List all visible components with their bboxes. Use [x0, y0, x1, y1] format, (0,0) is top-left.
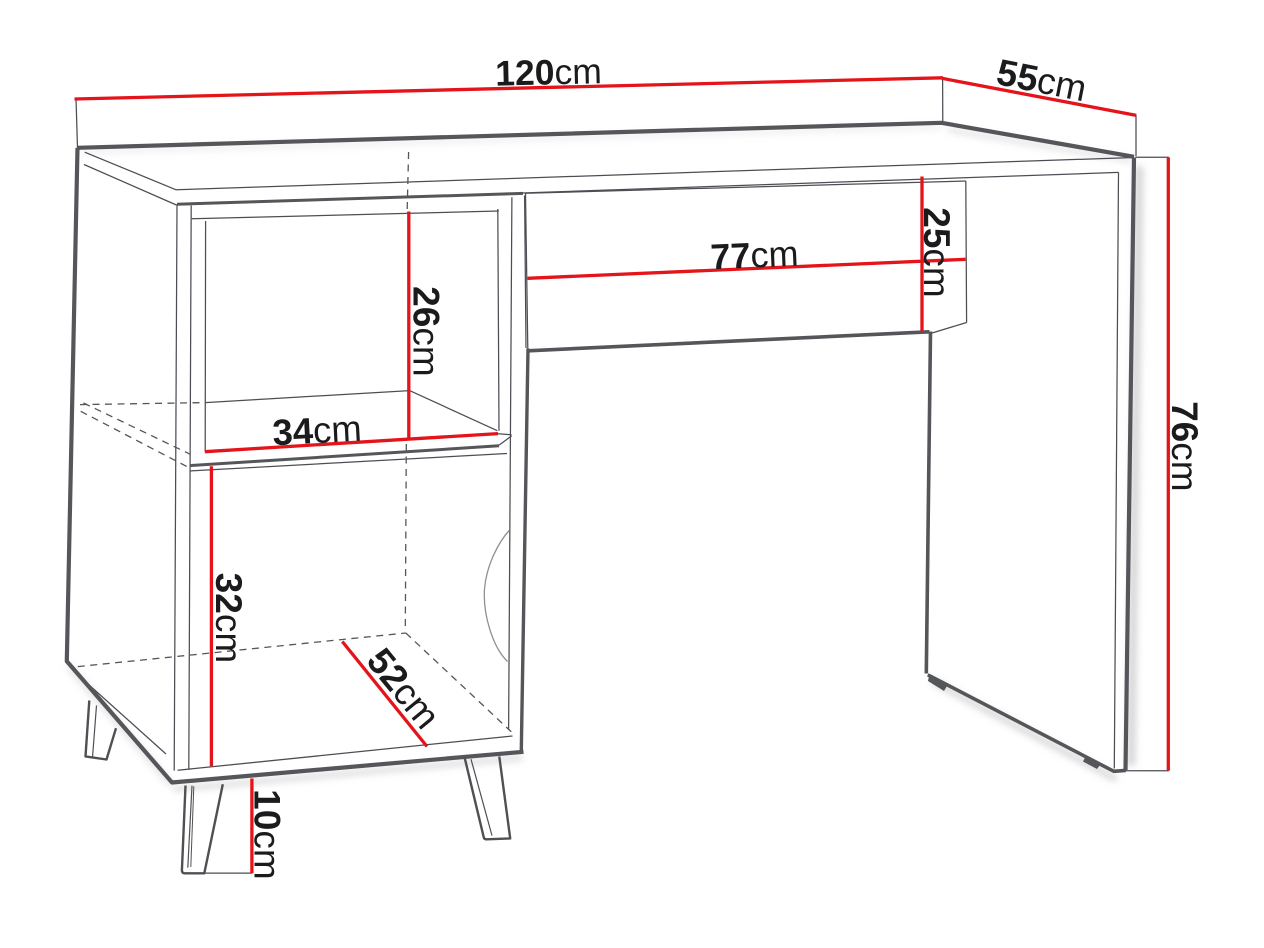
- svg-text:26cm: 26cm: [406, 286, 447, 376]
- svg-text:120cm: 120cm: [495, 51, 602, 93]
- svg-text:25cm: 25cm: [916, 207, 957, 297]
- svg-text:34cm: 34cm: [271, 408, 362, 454]
- svg-text:77cm: 77cm: [710, 233, 800, 278]
- svg-text:10cm: 10cm: [247, 789, 288, 879]
- svg-text:32cm: 32cm: [208, 573, 249, 663]
- svg-text:76cm: 76cm: [1164, 401, 1205, 491]
